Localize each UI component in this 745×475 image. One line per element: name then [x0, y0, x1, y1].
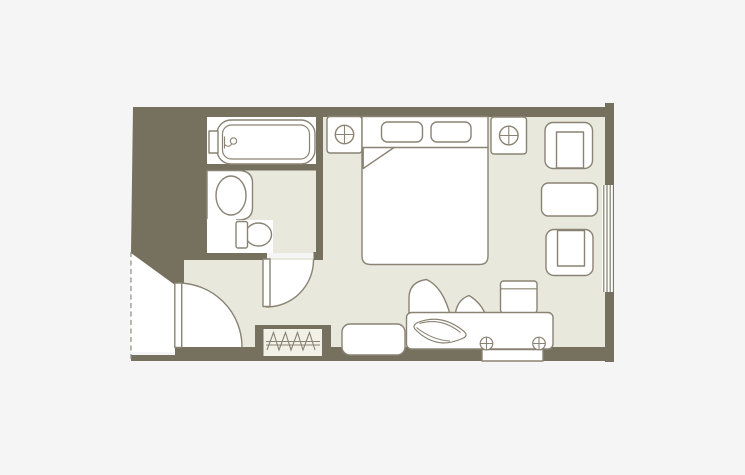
- toilet-bowl: [246, 223, 272, 246]
- bathroom-door-leaf: [263, 259, 270, 307]
- double-bed: [362, 117, 488, 265]
- toilet-tank: [236, 222, 248, 249]
- entry-door-leaf: [175, 283, 182, 348]
- pillow-left: [382, 122, 423, 142]
- wall-bathroom-divider: [207, 164, 316, 171]
- armchair-bottom: [546, 230, 593, 276]
- wall-bathroom-south-right: [314, 252, 324, 260]
- nightstand-right: [491, 117, 527, 154]
- pillow-right: [431, 122, 471, 142]
- armchair-top-seat: [557, 132, 584, 168]
- floor-plan: [0, 0, 745, 475]
- drain-icon: [230, 138, 236, 144]
- armchair-bottom-seat: [558, 231, 585, 267]
- nightstand-left: [327, 117, 362, 154]
- desk-drawer-panel: [482, 350, 543, 362]
- window: [602, 185, 614, 292]
- closet-interior: [264, 329, 323, 356]
- closet: [255, 325, 331, 361]
- toilet-zone-left: [207, 219, 236, 253]
- washbasin: [207, 171, 253, 221]
- floor-plan-canvas: [0, 0, 745, 475]
- armchair-top: [545, 123, 593, 169]
- toilet: [207, 219, 273, 253]
- faucet-panel: [209, 131, 218, 153]
- luggage-bench: [342, 324, 405, 355]
- side-table: [542, 183, 598, 216]
- sitting-corner: [542, 123, 598, 276]
- wall-bathroom-east: [316, 116, 323, 260]
- desk-chair-seat: [501, 281, 538, 313]
- wall-bathroom-south-left: [184, 252, 267, 260]
- wall-bottom-entry: [131, 355, 178, 361]
- desk-chair: [501, 281, 538, 313]
- basin: [216, 176, 246, 215]
- bathtub: [209, 120, 315, 164]
